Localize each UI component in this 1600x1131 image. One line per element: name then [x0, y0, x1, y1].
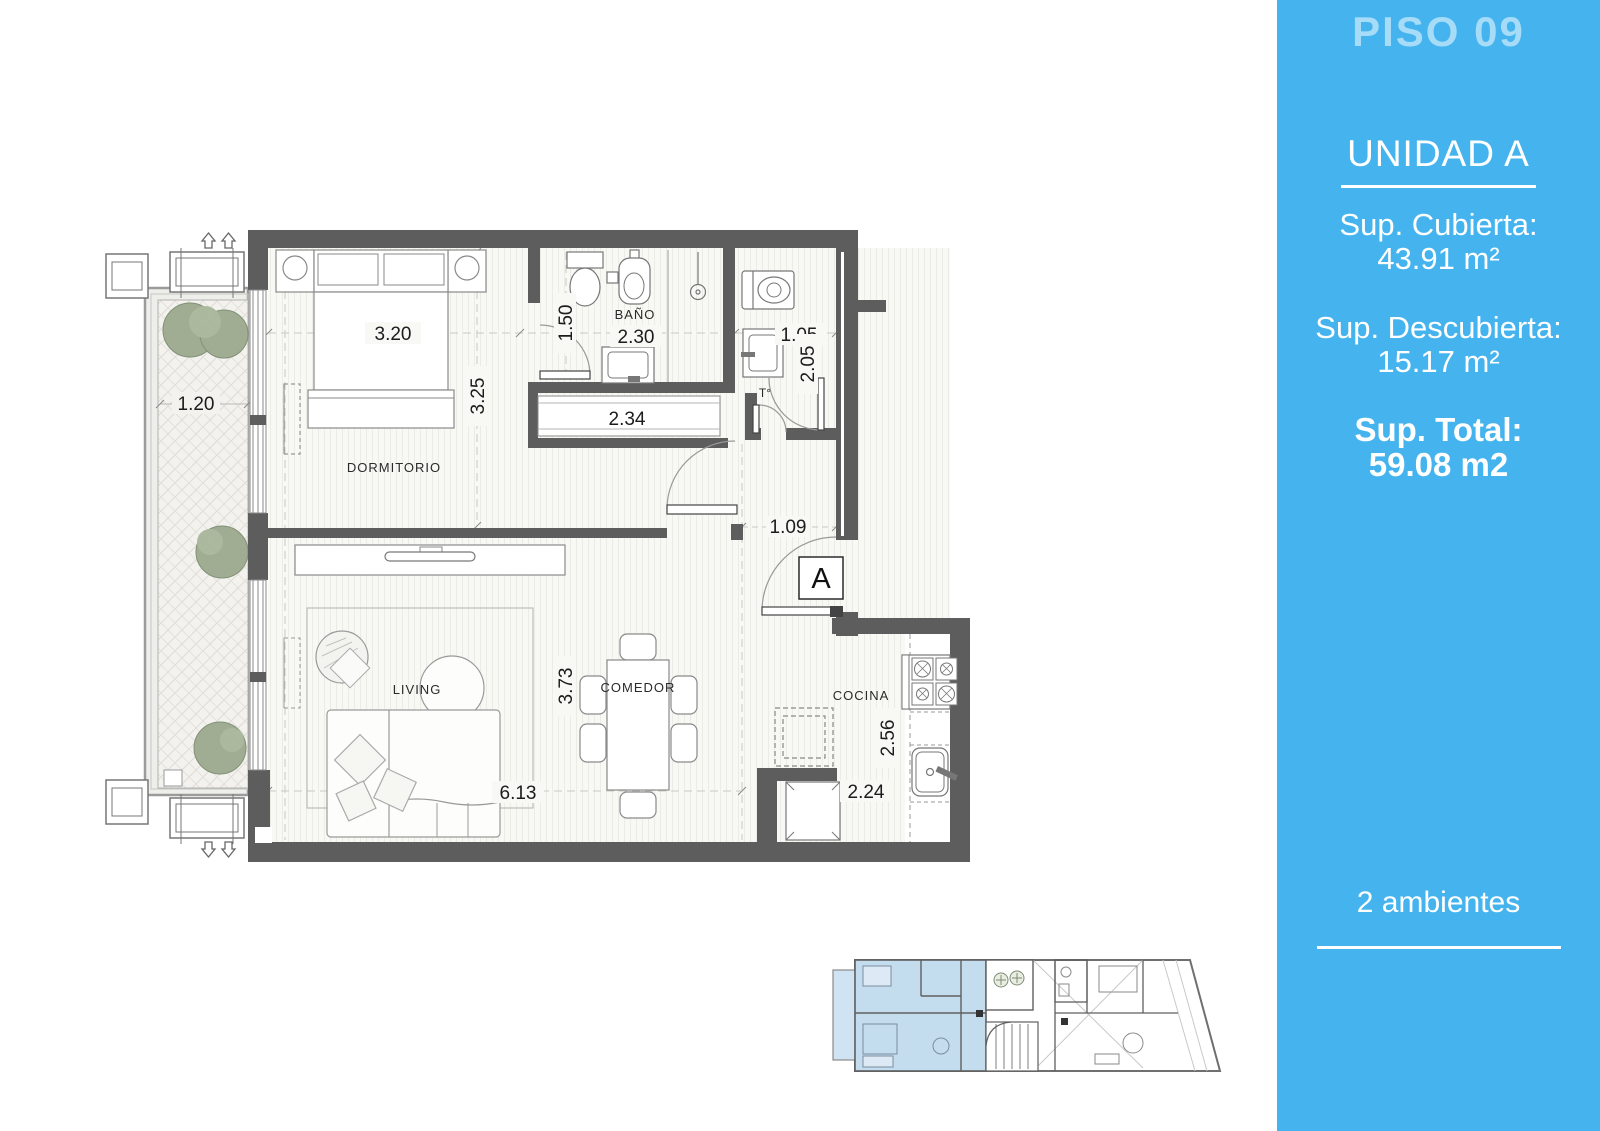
key-plan-stair [986, 1022, 1038, 1071]
uncovered-area-label: Sup. Descubierta: [1277, 311, 1600, 345]
label-comedor: COMEDOR [601, 680, 676, 695]
svg-text:3.20: 3.20 [375, 324, 412, 345]
svg-text:1.09: 1.09 [770, 517, 807, 538]
rooms-count: 2 ambientes [1277, 886, 1600, 920]
wall-bedroom-divider [248, 528, 667, 538]
wall-top [248, 230, 858, 248]
airflow-arrows-up [202, 233, 235, 248]
wall-pier-top [248, 230, 268, 290]
wall-stub-right [858, 300, 886, 312]
unit-marker-letter: A [811, 563, 831, 595]
door-jamb-bedroom [731, 524, 743, 540]
svg-text:2.05: 2.05 [798, 346, 819, 383]
svg-text:1.20: 1.20 [178, 394, 215, 415]
stove [902, 655, 957, 709]
floorplan-area: A 1.20 3.20 3.25 1.50 BAÑO 2.30 2.34 1.0… [0, 0, 1277, 1131]
floorplan-svg: A 1.20 3.20 3.25 1.50 BAÑO 2.30 2.34 1.0… [0, 0, 1277, 1131]
wall-bath-pier [528, 248, 540, 303]
chair-right-2 [671, 724, 697, 762]
label-living: LIVING [393, 682, 442, 697]
bath-vanity [602, 347, 654, 383]
key-plan [833, 960, 1220, 1071]
unit-title-wrap: UNIDAD A [1277, 133, 1600, 188]
info-sidebar: PISO 09 UNIDAD A Sup. Cubierta: 43.91 m²… [1277, 0, 1600, 1131]
page: A 1.20 3.20 3.25 1.50 BAÑO 2.30 2.34 1.0… [0, 0, 1600, 1131]
total-area-value: 59.08 m2 [1277, 447, 1600, 482]
dim-dining-depth: 3.73 [554, 656, 577, 716]
label-bano: BAÑO [615, 307, 656, 322]
sidebar-divider-line [1317, 946, 1561, 949]
ac-unit-top [106, 233, 244, 298]
unit-entry-marker: A [799, 557, 843, 599]
covered-area-value: 43.91 m² [1277, 242, 1600, 276]
washing-machine [742, 271, 794, 309]
svg-text:2.30: 2.30 [618, 327, 655, 348]
total-area-label: Sup. Total: [1277, 412, 1600, 447]
svg-text:3.73: 3.73 [556, 668, 577, 705]
airflow-arrows-down [202, 842, 235, 857]
chair-left-2 [580, 724, 606, 762]
dim-balcony-width: 1.20 [172, 392, 220, 415]
sofa [327, 710, 500, 837]
dim-laundry-depth: 2.05 [796, 334, 819, 394]
dim-bath-hall: 1.50 [554, 293, 577, 353]
svg-text:2.24: 2.24 [848, 782, 885, 803]
svg-text:3.25: 3.25 [468, 378, 489, 415]
chair-top [620, 634, 656, 660]
window-mullion-lower [250, 672, 266, 682]
label-water-heater: T° [759, 386, 771, 400]
wall-kitchen-top [832, 618, 970, 634]
label-cocina: COCINA [833, 688, 890, 703]
wall-closet-bottom [528, 438, 728, 448]
dim-bedroom-depth: 3.25 [466, 366, 489, 426]
key-plan-marker-b [1061, 1018, 1068, 1025]
wall-bottom [248, 842, 970, 862]
uncovered-area-value: 15.17 m² [1277, 345, 1600, 379]
entry-door-hinge [830, 606, 843, 617]
flush-button [607, 272, 618, 283]
dim-closet-width: 2.34 [609, 409, 646, 430]
dim-bedroom-width: 3.20 [365, 322, 421, 345]
label-dormitorio: DORMITORIO [347, 460, 441, 475]
balcony [145, 288, 248, 795]
chair-bottom [620, 792, 656, 818]
tv-console [295, 545, 565, 575]
window-mullion-upper [250, 415, 266, 425]
dim-entry-width: 1.09 [766, 516, 810, 538]
floor-title: PISO 09 [1277, 8, 1600, 56]
kitchen-appliance [786, 782, 840, 840]
floor-drain [164, 770, 182, 786]
svg-text:2.56: 2.56 [878, 720, 899, 757]
wall-kitchen-stub-v [757, 768, 777, 845]
dim-kitchen-width: 2.24 [840, 780, 892, 803]
wall-pier-mid [248, 513, 268, 580]
unit-title: UNIDAD A [1341, 133, 1536, 188]
key-plan-marker-a [976, 1010, 983, 1017]
svg-text:6.13: 6.13 [500, 783, 537, 804]
dim-living-width: 6.13 [492, 781, 544, 804]
planter-middle [196, 526, 248, 578]
svg-text:1.50: 1.50 [556, 305, 577, 342]
dim-kitchen-depth: 2.56 [876, 708, 899, 768]
wall-bath-right [723, 248, 735, 393]
covered-area-label: Sup. Cubierta: [1277, 208, 1600, 242]
key-plan-balcony [833, 970, 855, 1060]
dim-bath-width: 2.30 [610, 325, 662, 348]
wall-right-upper [836, 248, 858, 540]
key-plan-patio [986, 960, 1033, 1010]
wall-bath-bottom [528, 382, 735, 393]
planter-bottom [194, 722, 246, 774]
